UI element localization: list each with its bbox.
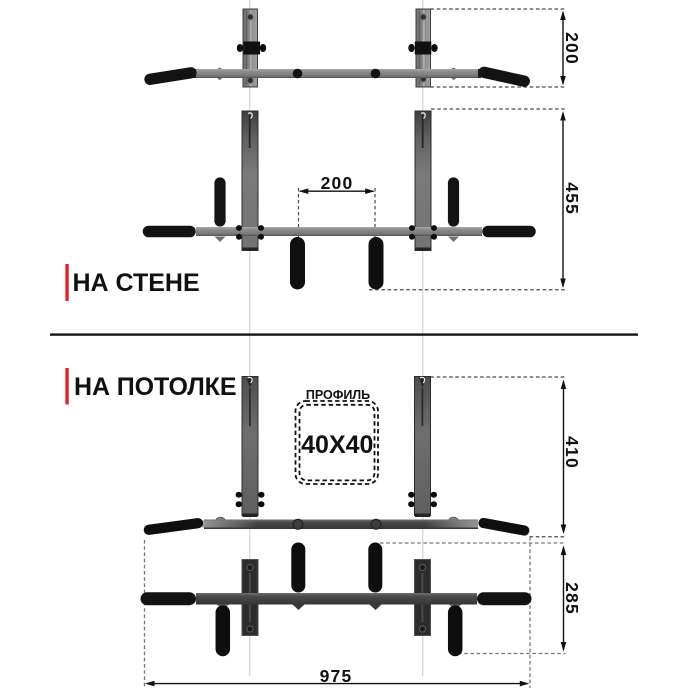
- svg-text:285: 285: [562, 582, 582, 615]
- svg-text:ПРОФИЛЬ: ПРОФИЛЬ: [306, 388, 370, 402]
- svg-text:200: 200: [562, 32, 582, 65]
- svg-text:455: 455: [562, 182, 582, 215]
- svg-text:40X40: 40X40: [301, 431, 373, 459]
- svg-text:410: 410: [562, 436, 582, 469]
- svg-text:НА СТЕНЕ: НА СТЕНЕ: [73, 269, 200, 297]
- svg-text:НА ПОТОЛКЕ: НА ПОТОЛКЕ: [74, 373, 236, 401]
- svg-text:975: 975: [320, 666, 353, 686]
- svg-text:200: 200: [321, 173, 354, 193]
